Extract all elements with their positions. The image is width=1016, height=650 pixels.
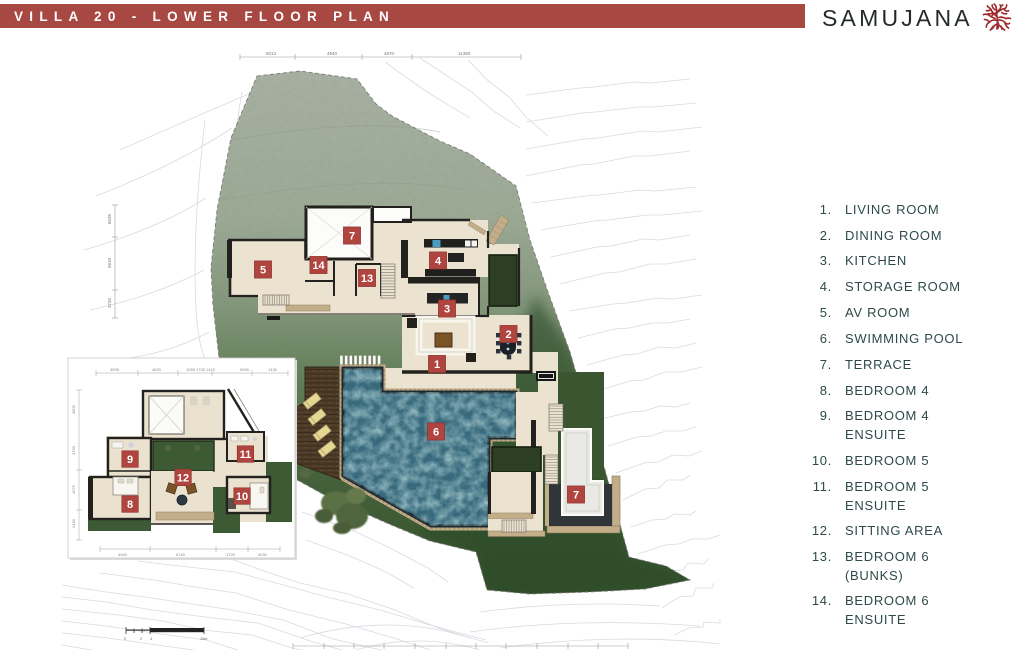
- svg-text:4030: 4030: [258, 552, 268, 557]
- svg-text:10m: 10m: [200, 637, 207, 641]
- svg-text:5610: 5610: [107, 257, 112, 268]
- svg-text:3750: 3750: [71, 445, 76, 455]
- svg-text:1: 1: [434, 359, 440, 371]
- svg-text:1430: 1430: [268, 367, 278, 372]
- svg-text:11: 11: [240, 449, 252, 461]
- svg-text:4: 4: [150, 637, 152, 641]
- svg-text:4940: 4940: [327, 51, 338, 56]
- svg-text:10: 10: [236, 491, 248, 503]
- svg-text:5969: 5969: [240, 367, 250, 372]
- svg-text:7: 7: [349, 231, 355, 243]
- svg-text:4595: 4595: [110, 367, 120, 372]
- svg-text:4940: 4940: [118, 552, 128, 557]
- svg-text:6740: 6740: [176, 552, 186, 557]
- svg-text:8: 8: [127, 499, 133, 511]
- svg-text:3745: 3745: [107, 297, 112, 308]
- svg-text:7: 7: [573, 490, 579, 502]
- svg-text:1059 1725 1470: 1059 1725 1470: [186, 367, 216, 372]
- svg-text:6535: 6535: [107, 213, 112, 224]
- svg-text:4670: 4670: [384, 51, 395, 56]
- svg-text:6013: 6013: [266, 51, 277, 56]
- svg-text:12: 12: [177, 473, 189, 485]
- svg-text:3: 3: [444, 304, 450, 316]
- svg-text:9: 9: [127, 454, 133, 466]
- svg-text:4620: 4620: [152, 367, 162, 372]
- svg-text:1720: 1720: [226, 552, 236, 557]
- svg-text:2: 2: [505, 329, 511, 341]
- svg-text:4275: 4275: [71, 484, 76, 494]
- svg-text:5: 5: [260, 265, 266, 277]
- svg-text:14: 14: [312, 260, 325, 272]
- svg-text:6: 6: [433, 427, 439, 439]
- svg-text:2: 2: [140, 637, 142, 641]
- svg-text:0: 0: [124, 637, 126, 641]
- svg-text:2440: 2440: [71, 518, 76, 528]
- svg-text:13: 13: [361, 273, 373, 285]
- svg-text:11390: 11390: [458, 51, 471, 56]
- svg-text:4600: 4600: [71, 404, 76, 414]
- svg-text:4: 4: [435, 256, 442, 268]
